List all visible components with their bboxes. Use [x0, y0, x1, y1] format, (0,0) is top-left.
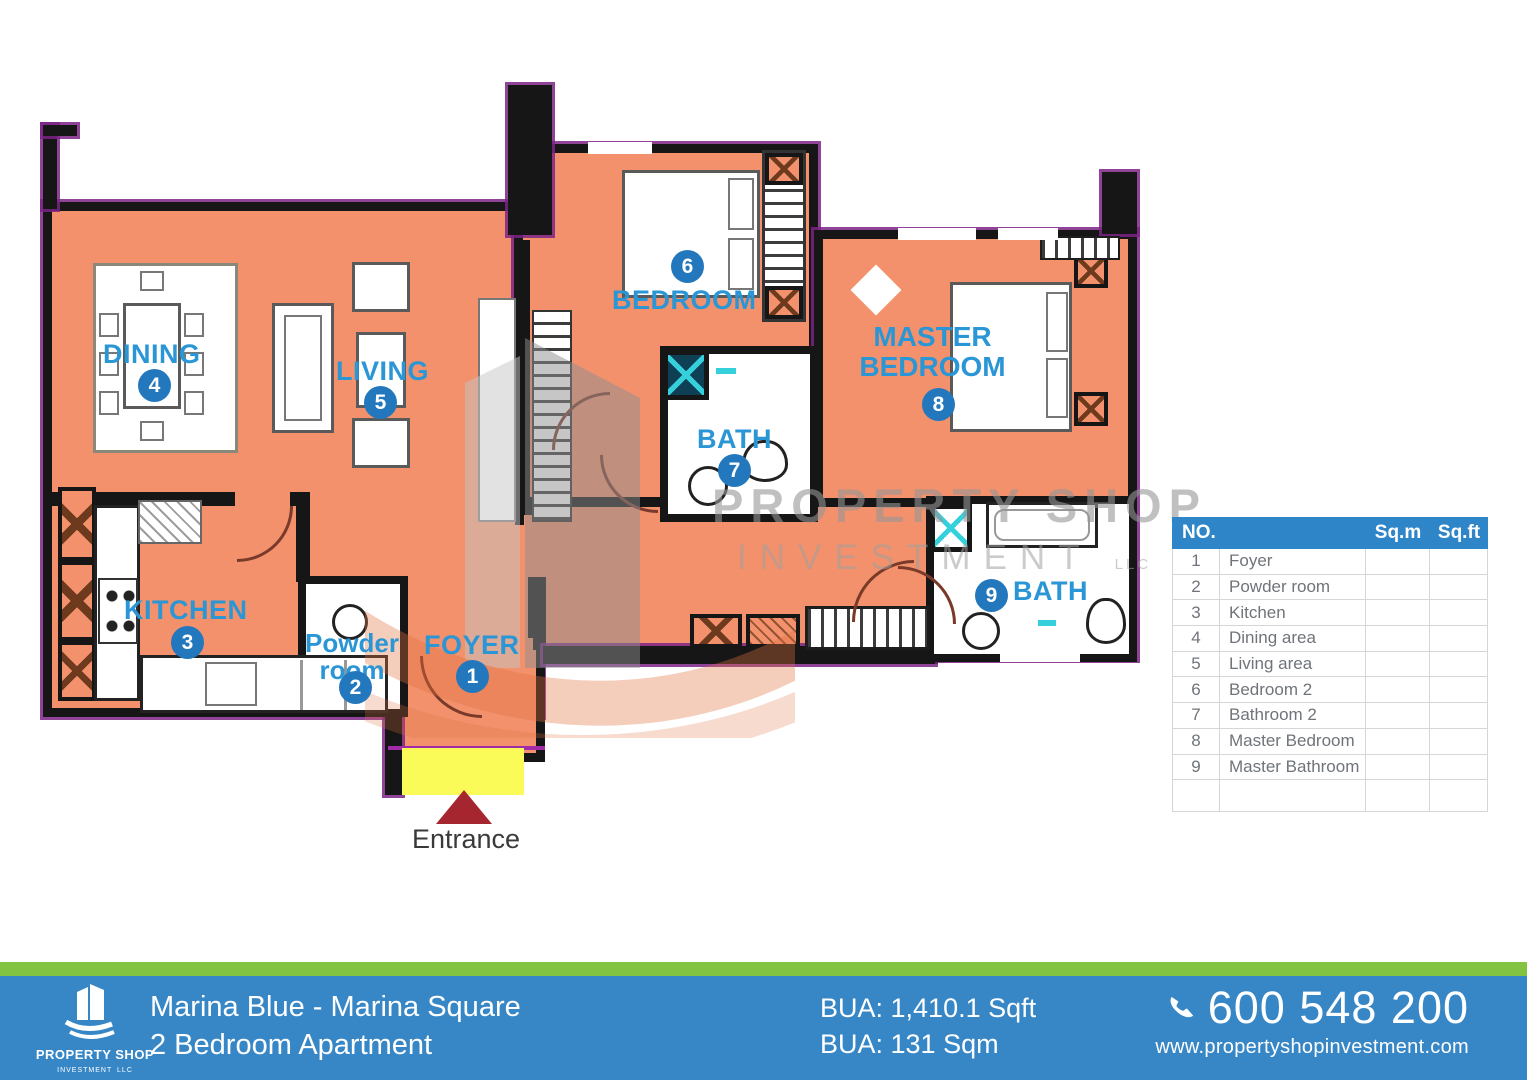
- logo-name: PROPERTY SHOP: [26, 1047, 164, 1062]
- room-label-kitchen: KITCHEN: [124, 595, 248, 626]
- table-cell-sqft: [1429, 677, 1487, 702]
- wardrobe-shelves: [765, 188, 803, 283]
- table-row: 8Master Bedroom: [1173, 729, 1487, 755]
- logo-sub: INVESTMENT LLC: [26, 1064, 164, 1075]
- wall: [515, 240, 530, 525]
- table-cell-sqft: [1429, 780, 1487, 811]
- table-row: 5Living area: [1173, 652, 1487, 678]
- table-cell-name: Living area: [1219, 652, 1365, 677]
- table-cell-name: Foyer: [1219, 549, 1365, 574]
- floor-plan: PROPERTY SHOP INVESTMENT LLC DINING 4 LI…: [0, 0, 1160, 900]
- table-row: 9Master Bathroom: [1173, 755, 1487, 781]
- website-url: www.propertyshopinvestment.com: [1155, 1036, 1469, 1059]
- room-number-badge: 3: [171, 626, 204, 659]
- table-row: 4Dining area: [1173, 626, 1487, 652]
- wall: [385, 715, 402, 795]
- pillow: [728, 178, 754, 230]
- faucet-mark: [1038, 620, 1056, 626]
- column: [508, 85, 552, 235]
- room-label-master: MASTER BEDROOM: [850, 322, 1015, 382]
- window: [588, 142, 652, 154]
- table-row: 2Powder room: [1173, 575, 1487, 601]
- master-line2: BEDROOM: [859, 351, 1005, 382]
- shower: [930, 504, 972, 552]
- room-label-living: LIVING: [336, 356, 429, 387]
- wall: [43, 125, 77, 136]
- dining-chair: [140, 421, 164, 441]
- table-body: 1Foyer2Powder room3Kitchen4Dining area5L…: [1172, 549, 1488, 812]
- bua-sqft: BUA: 1,410.1 Sqft: [820, 990, 1036, 1026]
- table-cell-sqm: [1365, 677, 1429, 702]
- table-cell-name: Kitchen: [1219, 600, 1365, 625]
- storage-box: [746, 614, 800, 648]
- contact-block: 600 548 200 www.propertyshopinvestment.c…: [1155, 982, 1469, 1059]
- logo-sub-text: INVESTMENT: [57, 1067, 112, 1074]
- pillow: [1046, 292, 1068, 352]
- table-cell-sqft: [1429, 652, 1487, 677]
- phone-number: 600 548 200: [1155, 982, 1469, 1034]
- window: [1000, 650, 1080, 662]
- dining-chair: [184, 391, 204, 415]
- armchair: [352, 262, 410, 312]
- master-line1: MASTER: [873, 321, 991, 352]
- table-cell-no: 5: [1173, 652, 1219, 677]
- table-cell-sqm: [1365, 780, 1429, 811]
- table-cell-no: 3: [1173, 600, 1219, 625]
- bua-sqm: BUA: 131 Sqm: [820, 1026, 1036, 1062]
- window: [998, 228, 1058, 240]
- faucet-mark: [716, 368, 736, 374]
- table-row: 1Foyer: [1173, 549, 1487, 575]
- bua-block: BUA: 1,410.1 Sqft BUA: 131 Sqm: [820, 990, 1036, 1062]
- room-label-bath2: BATH: [697, 424, 772, 455]
- table-cell-name: Master Bathroom: [1219, 755, 1365, 780]
- storage-box: [690, 614, 742, 648]
- table-row: [1173, 780, 1487, 812]
- table-cell-name: [1219, 780, 1365, 811]
- phone-icon: [1162, 990, 1198, 1026]
- header-sqm: Sq.m: [1366, 517, 1430, 549]
- header-sqft: Sq.ft: [1430, 517, 1488, 549]
- entrance-pad: [402, 748, 524, 795]
- room-number-badge: 6: [671, 250, 704, 283]
- kitchen-sink: [205, 662, 257, 706]
- armchair: [352, 418, 410, 468]
- table-cell-name: Bathroom 2: [1219, 703, 1365, 728]
- shower: [663, 350, 709, 400]
- room-number-badge: 5: [364, 386, 397, 419]
- table-cell-name: Master Bedroom: [1219, 729, 1365, 754]
- nightstand: [1074, 392, 1108, 426]
- room-label-dining: DINING: [103, 339, 201, 370]
- table-cell-sqm: [1365, 729, 1429, 754]
- table-cell-sqft: [1429, 626, 1487, 651]
- header-no: NO.: [1172, 517, 1218, 549]
- table-cell-no: 6: [1173, 677, 1219, 702]
- table-row: 3Kitchen: [1173, 600, 1487, 626]
- psi-logo-icon: [59, 982, 131, 1040]
- wall: [296, 492, 310, 582]
- sink: [962, 612, 1000, 650]
- company-logo: PROPERTY SHOP INVESTMENT LLC: [26, 982, 164, 1075]
- room-number-badge: 7: [718, 454, 751, 487]
- table-cell-sqm: [1365, 626, 1429, 651]
- dining-chair: [99, 391, 119, 415]
- table-cell-sqft: [1429, 575, 1487, 600]
- table-cell-no: 7: [1173, 703, 1219, 728]
- table-cell-sqm: [1365, 600, 1429, 625]
- room-number-badge: 9: [975, 579, 1008, 612]
- footer: PROPERTY SHOP INVESTMENT LLC Marina Blue…: [0, 976, 1527, 1080]
- wardrobe-box: [765, 153, 803, 185]
- room-label-bedroom2: BEDROOM: [612, 285, 757, 316]
- dining-chair: [99, 313, 119, 337]
- dining-chair: [184, 313, 204, 337]
- header-name: [1218, 517, 1366, 549]
- pillow: [1046, 358, 1068, 418]
- table-cell-sqm: [1365, 755, 1429, 780]
- room-number-badge: 1: [456, 660, 489, 693]
- table-cell-sqft: [1429, 703, 1487, 728]
- table-cell-sqft: [1429, 755, 1487, 780]
- shaft: [58, 561, 96, 641]
- project-title-block: Marina Blue - Marina Square 2 Bedroom Ap…: [150, 988, 521, 1064]
- kitchen-appliance: [138, 500, 202, 544]
- wardrobe-box: [765, 286, 803, 319]
- table-cell-sqm: [1365, 575, 1429, 600]
- table-cell-no: [1173, 780, 1219, 811]
- corridor-cabinet: [478, 298, 516, 522]
- table-cell-sqm: [1365, 703, 1429, 728]
- bathtub-inner: [994, 509, 1090, 541]
- entrance-label: Entrance: [396, 824, 536, 855]
- table-cell-sqm: [1365, 549, 1429, 574]
- table-cell-sqft: [1429, 600, 1487, 625]
- opening: [810, 540, 832, 602]
- table-cell-sqft: [1429, 549, 1487, 574]
- floorplan-flyer: { "plan": { "labels": { "dining": {"text…: [0, 0, 1527, 1080]
- table-cell-name: Bedroom 2: [1219, 677, 1365, 702]
- pillow: [728, 238, 754, 290]
- opening: [524, 515, 550, 577]
- column: [1102, 172, 1137, 234]
- table-row: 7Bathroom 2: [1173, 703, 1487, 729]
- table-row: 6Bedroom 2: [1173, 677, 1487, 703]
- table-cell-no: 4: [1173, 626, 1219, 651]
- table-cell-sqm: [1365, 652, 1429, 677]
- room-spec-table: NO. Sq.m Sq.ft 1Foyer2Powder room3Kitche…: [1172, 517, 1488, 812]
- entrance-arrow-icon: [436, 790, 492, 824]
- table-cell-no: 2: [1173, 575, 1219, 600]
- powder-line1: Powder: [305, 628, 399, 658]
- room-label-masterbath: BATH: [1013, 576, 1088, 607]
- dining-chair: [140, 271, 164, 291]
- shaft: [58, 487, 96, 561]
- table-cell-name: Dining area: [1219, 626, 1365, 651]
- room-label-foyer: FOYER: [424, 630, 520, 661]
- phone-text: 600 548 200: [1208, 982, 1469, 1034]
- window: [898, 228, 976, 240]
- table-header: NO. Sq.m Sq.ft: [1172, 517, 1488, 549]
- table-cell-no: 8: [1173, 729, 1219, 754]
- room-number-badge: 2: [339, 671, 372, 704]
- wall: [43, 125, 57, 209]
- table-cell-name: Powder room: [1219, 575, 1365, 600]
- sofa-cushion: [284, 315, 322, 421]
- room-number-badge: 4: [138, 369, 171, 402]
- footer-accent-bar: [0, 962, 1527, 976]
- project-name: Marina Blue - Marina Square: [150, 988, 521, 1026]
- shaft: [58, 641, 96, 701]
- unit-type: 2 Bedroom Apartment: [150, 1026, 521, 1064]
- room-number-badge: 8: [922, 388, 955, 421]
- toilet: [1086, 598, 1126, 644]
- table-cell-no: 1: [1173, 549, 1219, 574]
- table-cell-sqft: [1429, 729, 1487, 754]
- table-cell-no: 9: [1173, 755, 1219, 780]
- logo-suffix: LLC: [117, 1067, 133, 1074]
